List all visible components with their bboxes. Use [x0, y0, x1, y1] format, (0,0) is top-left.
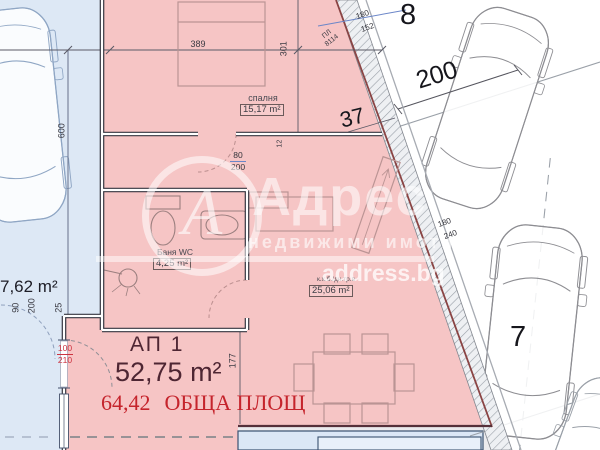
- floor-plan-page: 389 301 600 12 80 200 90 200 25 177 100 …: [0, 0, 600, 450]
- dim-bedroom-height: 301: [279, 34, 288, 64]
- window-symbol: [60, 394, 69, 448]
- room-living-area: 25,06 m²: [309, 285, 353, 297]
- dim-step: 25: [54, 298, 63, 318]
- total-area-label: ОБЩА ПЛОЩ: [165, 391, 306, 414]
- parking-spot-7-number: 7: [510, 322, 527, 352]
- floor-plan-canvas: [0, 0, 600, 450]
- apartment-id: АП 1: [130, 334, 184, 356]
- room-bath-name: Баня WC: [148, 248, 202, 257]
- room-bedroom-name: спалня: [236, 94, 290, 103]
- dim-door-height: 200: [231, 163, 245, 172]
- room-bath-area: 4,25 m²: [153, 258, 191, 270]
- bottom-terrace-inner: [318, 437, 481, 450]
- total-area-value: 64,42: [101, 391, 151, 414]
- dim-window-width: 90: [11, 297, 20, 319]
- dim-entry-width: 100: [58, 344, 72, 353]
- dim-window-height: 200: [27, 293, 36, 319]
- dim-parking-depth: 600: [57, 116, 66, 146]
- room-living-name: к.х.б./дн.тр.в: [303, 277, 369, 284]
- parking-spot-8-number: 8: [400, 0, 417, 30]
- dim-wall-thickness: 12: [276, 136, 283, 152]
- dim-door-width: 80: [233, 151, 242, 160]
- dim-door-label: 80 200: [226, 151, 250, 172]
- dim-hall: 177: [228, 348, 237, 374]
- dim-entry-height: 210: [58, 356, 72, 365]
- dim-bedroom-width: 389: [178, 40, 218, 49]
- apartment-area-label: 52,75 m²: [115, 358, 222, 386]
- dim-corner: 37: [338, 103, 367, 131]
- total-area: 64,42 ОБЩА ПЛОЩ: [101, 391, 306, 414]
- dim-entry-label: 100 210: [52, 344, 78, 365]
- room-bedroom-area: 15,17 m²: [240, 104, 284, 116]
- adjacent-area-label: 7,62 m²: [0, 278, 58, 296]
